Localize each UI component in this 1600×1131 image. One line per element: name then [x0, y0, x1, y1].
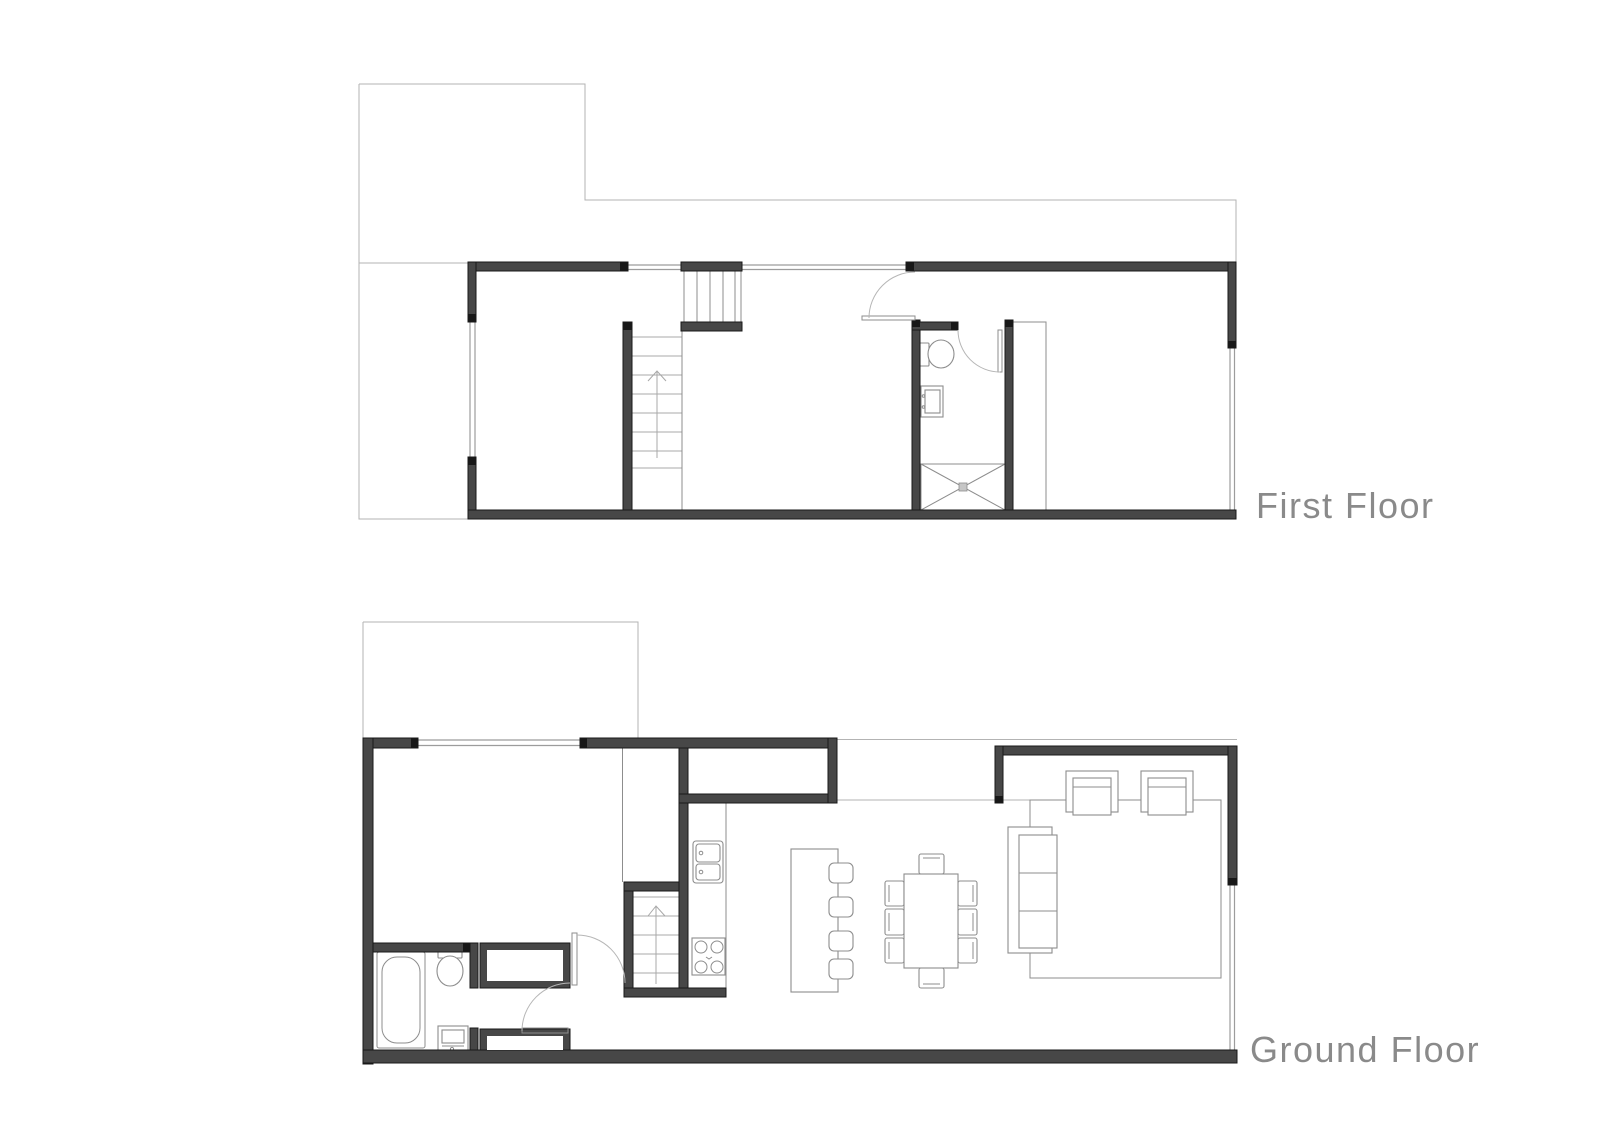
room-door: [572, 933, 625, 985]
first-floor-label: First Floor: [1256, 485, 1435, 527]
toilet: [437, 948, 463, 986]
first-floor-plan: [359, 84, 1236, 519]
bathroom-wall-top: [373, 943, 470, 952]
stair-void: [684, 271, 741, 322]
vanity-sink: [438, 1026, 468, 1053]
ground-floor-label: Ground Floor: [1250, 1029, 1480, 1071]
rug: [1030, 800, 1221, 978]
dining-set: [885, 854, 977, 988]
bathroom-wall-right: [470, 943, 478, 988]
bathroom-wall-left: [912, 320, 920, 510]
toilet-bowl: [928, 340, 954, 368]
up-arrow-icon: [648, 371, 666, 458]
staircase: [633, 897, 679, 984]
door-swing-arc: [522, 983, 570, 1031]
toilet: [917, 340, 954, 368]
wardrobe: [1013, 322, 1046, 510]
door-leaf: [862, 316, 915, 320]
staircase: [632, 330, 682, 510]
bathroom-wall-right: [470, 1028, 478, 1050]
door-leaf: [998, 330, 1002, 372]
kitchen-sink: [693, 841, 723, 883]
bathroom-sink: [921, 386, 943, 417]
bathroom-door: [958, 330, 1002, 372]
dining-chair: [885, 938, 904, 963]
ground-floor-plan: [363, 622, 1237, 1064]
door-swing-arc: [577, 935, 625, 983]
kitchen: [688, 803, 726, 988]
hall-cabinet: [480, 1029, 570, 1050]
dining-chair: [885, 909, 904, 935]
site-outline: [359, 84, 1236, 519]
living-room-wall-stub: [995, 746, 1003, 803]
shower: [921, 464, 1005, 510]
door-swing-arc: [869, 272, 915, 318]
up-arrow-icon: [648, 906, 665, 984]
dining-chair: [958, 938, 977, 963]
door-swing-arc: [958, 330, 1000, 372]
bathroom-wall-right: [1005, 320, 1013, 510]
bathroom: [377, 948, 468, 1053]
stair-wall-top: [624, 882, 679, 891]
entry-door: [862, 272, 915, 320]
pantry-wall-right: [828, 738, 837, 803]
armchair: [1141, 771, 1193, 815]
door-leaf: [572, 933, 577, 985]
sofa: [1008, 827, 1057, 953]
hall-closet: [480, 943, 570, 988]
stove: [692, 938, 725, 975]
dining-chair: [919, 968, 944, 988]
floor-plan-sheet: First Floor Ground Floor: [0, 0, 1600, 1131]
pantry-wall-bottom: [679, 794, 837, 803]
bathroom-door: [522, 983, 570, 1033]
bathtub: [377, 952, 425, 1048]
exterior-walls: [468, 262, 1236, 519]
windows: [470, 265, 1235, 510]
dining-chair: [958, 881, 977, 906]
dining-table: [904, 874, 958, 968]
floor-plan-drawing: [0, 0, 1600, 1131]
dining-chair: [919, 854, 944, 874]
stair-wall: [623, 322, 632, 510]
armchair: [1066, 771, 1118, 815]
kitchen-divider-wall: [679, 748, 688, 997]
dining-chair: [885, 881, 904, 906]
stair-wall-bottom: [624, 988, 726, 997]
toilet-bowl: [437, 956, 463, 986]
dining-chair: [958, 909, 977, 935]
